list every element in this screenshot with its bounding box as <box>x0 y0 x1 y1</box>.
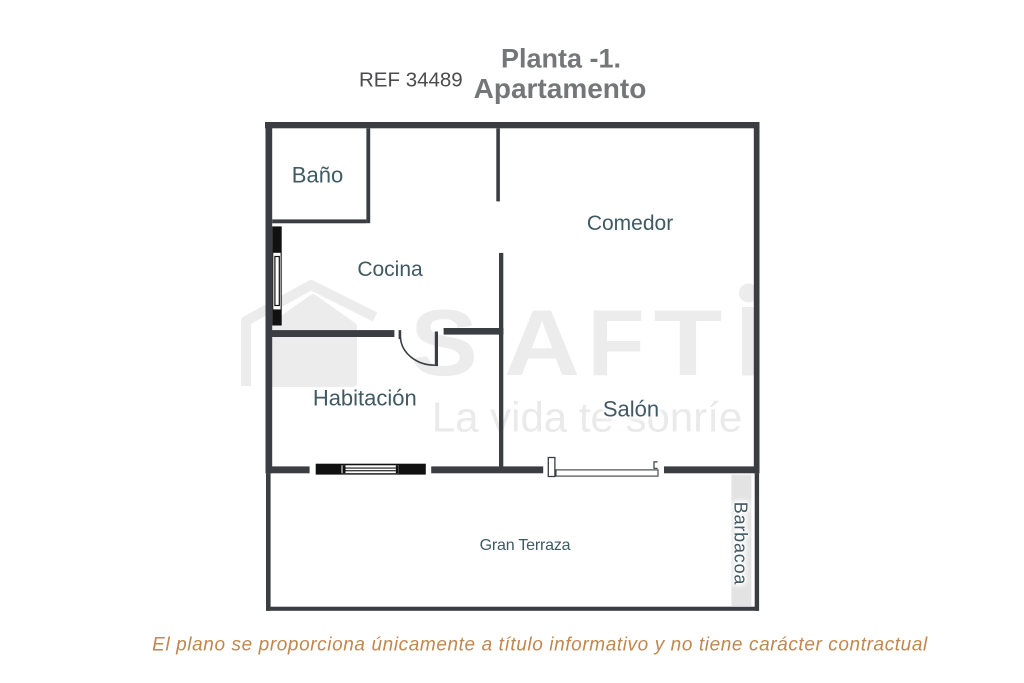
svg-text:Salón: Salón <box>603 397 659 422</box>
svg-text:Baño: Baño <box>292 163 343 188</box>
svg-text:T: T <box>654 291 723 396</box>
svg-text:S: S <box>410 289 478 395</box>
svg-text:REF 34489: REF 34489 <box>359 69 463 92</box>
svg-text:Cocina: Cocina <box>357 258 423 281</box>
svg-text:Comedor: Comedor <box>587 212 673 235</box>
svg-text:Apartamento: Apartamento <box>474 73 647 104</box>
svg-text:La vida te sonríe: La vida te sonríe <box>432 394 743 441</box>
svg-text:Planta -1.: Planta -1. <box>501 44 621 74</box>
svg-text:Gran Terraza: Gran Terraza <box>480 537 571 554</box>
svg-text:F: F <box>587 290 644 395</box>
svg-text:Habitación: Habitación <box>313 386 417 411</box>
svg-text:Barbacoa: Barbacoa <box>731 502 751 586</box>
svg-text:A: A <box>504 291 580 396</box>
svg-text:El plano se proporciona únicam: El plano se proporciona únicamente a tít… <box>152 635 928 656</box>
